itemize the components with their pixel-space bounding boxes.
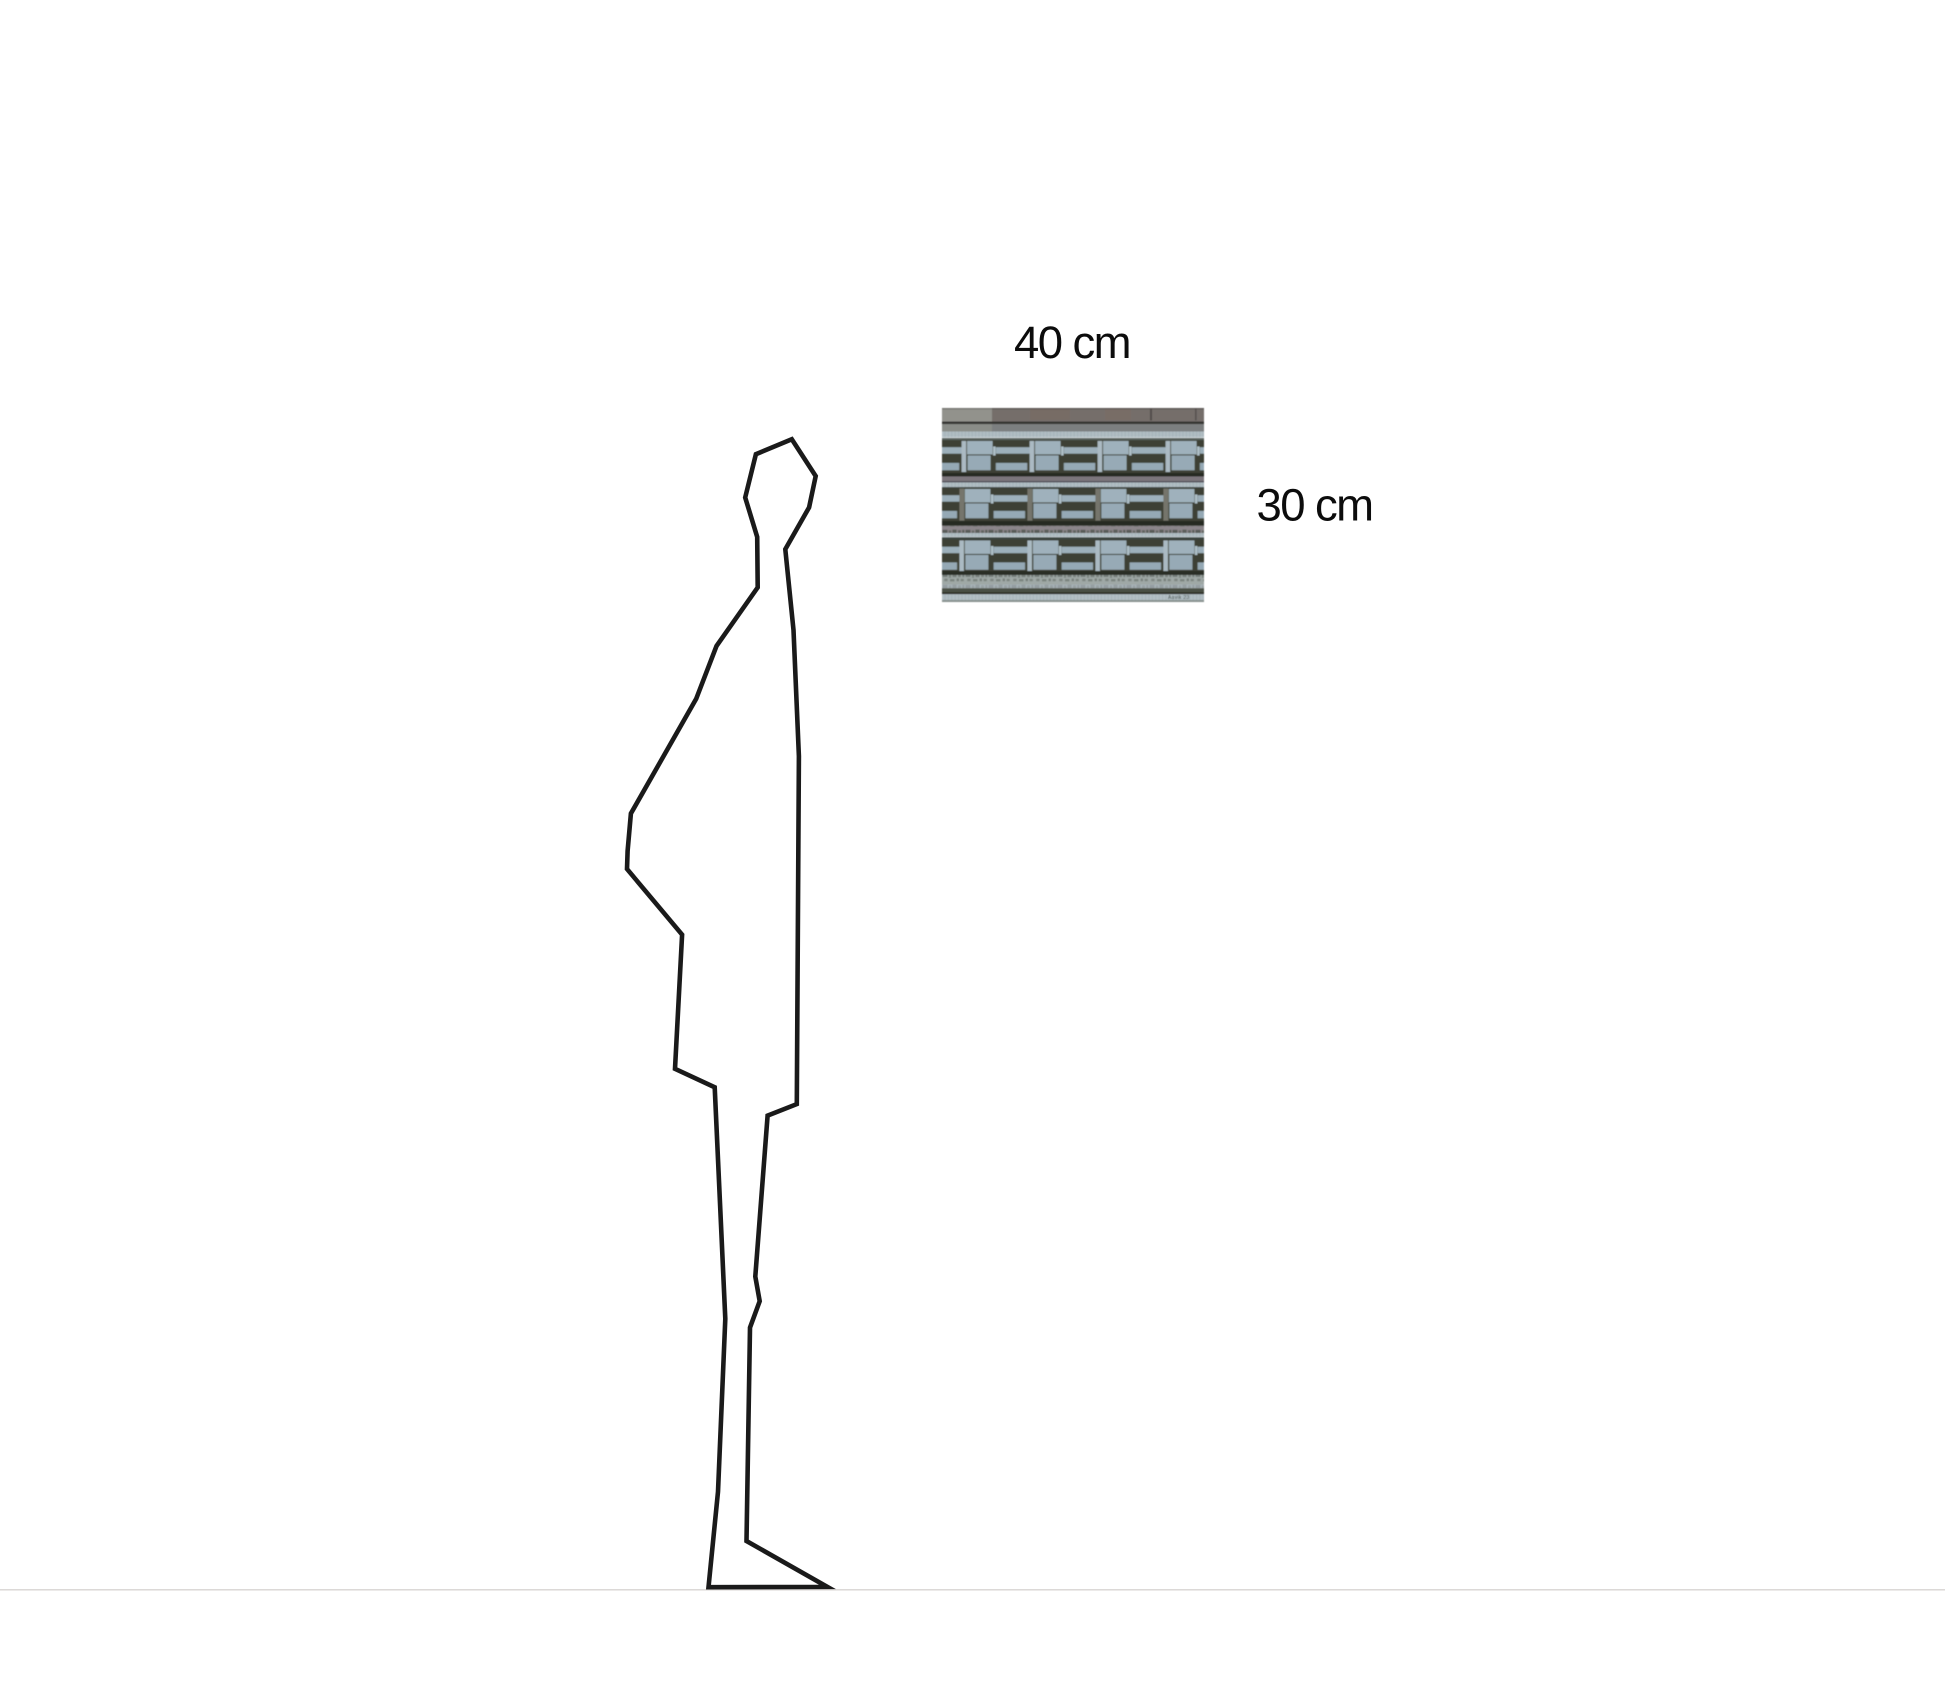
svg-text:40 cm: 40 cm — [1014, 317, 1130, 368]
svg-text:30 cm: 30 cm — [1257, 480, 1373, 531]
